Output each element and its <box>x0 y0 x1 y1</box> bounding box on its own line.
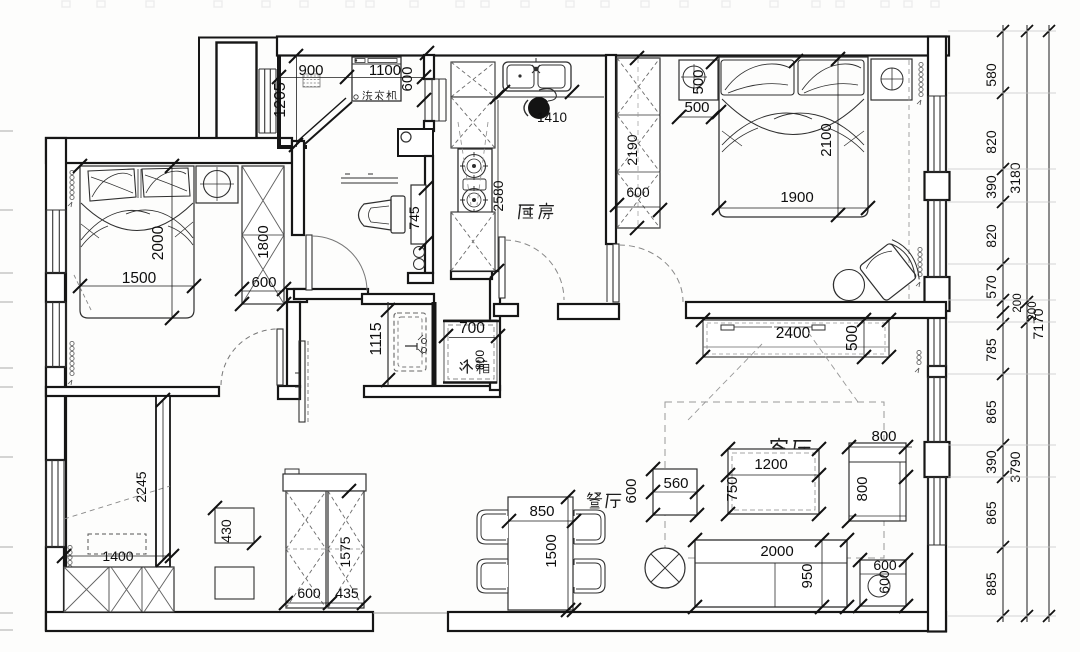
svg-text:500: 500 <box>684 99 709 116</box>
svg-text:1900: 1900 <box>780 189 813 206</box>
svg-text:600: 600 <box>876 570 892 594</box>
svg-text:435: 435 <box>335 585 359 601</box>
svg-text:390: 390 <box>983 175 999 199</box>
svg-text:1575: 1575 <box>337 536 353 567</box>
svg-text:2000: 2000 <box>760 543 793 560</box>
svg-text:1800: 1800 <box>255 225 272 258</box>
svg-text:560: 560 <box>663 475 688 492</box>
svg-text:800: 800 <box>473 350 487 370</box>
svg-text:785: 785 <box>983 338 999 362</box>
svg-text:900: 900 <box>298 62 323 79</box>
svg-text:820: 820 <box>983 224 999 248</box>
svg-text:850: 850 <box>529 503 554 520</box>
svg-text:7170: 7170 <box>1030 308 1046 339</box>
svg-text:600: 600 <box>623 478 640 503</box>
svg-text:1115: 1115 <box>368 322 385 355</box>
svg-text:865: 865 <box>983 400 999 424</box>
svg-text:3180: 3180 <box>1007 162 1023 193</box>
svg-text:1200: 1200 <box>754 456 787 473</box>
svg-text:1410: 1410 <box>537 110 567 125</box>
svg-text:2580: 2580 <box>490 180 506 211</box>
svg-text:1500: 1500 <box>543 534 560 567</box>
svg-text:600: 600 <box>297 585 321 601</box>
svg-text:1100: 1100 <box>369 62 401 79</box>
svg-text:745: 745 <box>406 206 422 230</box>
svg-text:865: 865 <box>983 501 999 525</box>
svg-text:2245: 2245 <box>133 471 149 502</box>
svg-text:200: 200 <box>1012 293 1024 312</box>
svg-text:700: 700 <box>459 320 485 337</box>
svg-text:750: 750 <box>724 476 741 501</box>
svg-text:950: 950 <box>799 563 816 588</box>
svg-text:2190: 2190 <box>624 134 640 165</box>
svg-text:800: 800 <box>871 428 896 445</box>
svg-text:600: 600 <box>399 66 416 91</box>
svg-text:2000: 2000 <box>150 225 167 260</box>
svg-text:820: 820 <box>983 130 999 154</box>
svg-text:1500: 1500 <box>122 270 157 287</box>
svg-text:600: 600 <box>626 184 650 200</box>
svg-text:800: 800 <box>854 476 871 501</box>
svg-text:500: 500 <box>844 325 861 351</box>
svg-text:390: 390 <box>983 450 999 474</box>
svg-text:570: 570 <box>983 275 999 299</box>
svg-text:2400: 2400 <box>776 325 811 342</box>
svg-text:1205: 1205 <box>272 82 289 118</box>
svg-text:430: 430 <box>218 519 234 543</box>
svg-text:500: 500 <box>690 69 707 94</box>
svg-text:2100: 2100 <box>818 123 835 156</box>
svg-text:580: 580 <box>983 63 999 87</box>
svg-text:885: 885 <box>983 572 999 596</box>
svg-text:600: 600 <box>251 274 276 291</box>
svg-text:3790: 3790 <box>1007 451 1023 482</box>
